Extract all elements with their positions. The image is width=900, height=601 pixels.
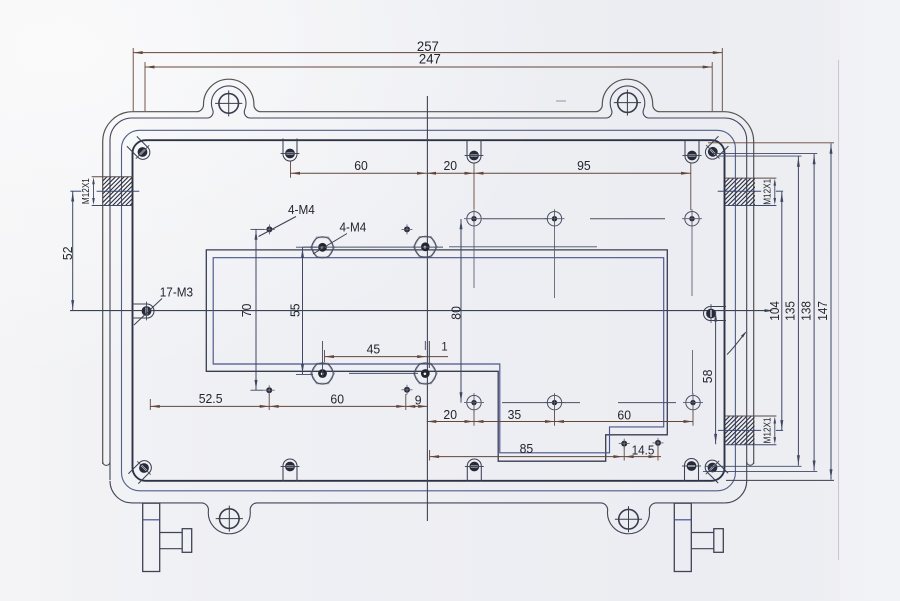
svg-text:20: 20	[443, 408, 457, 422]
svg-text:60: 60	[354, 159, 368, 173]
svg-text:135: 135	[783, 301, 797, 321]
svg-text:55: 55	[288, 303, 302, 317]
svg-text:60: 60	[617, 408, 631, 422]
svg-text:138: 138	[799, 301, 813, 321]
svg-text:147: 147	[816, 301, 830, 321]
svg-text:60: 60	[330, 392, 344, 406]
svg-text:52.5: 52.5	[199, 392, 223, 406]
svg-text:85: 85	[520, 442, 534, 456]
svg-text:80: 80	[449, 306, 463, 320]
svg-text:1: 1	[441, 340, 447, 353]
svg-text:M12X1: M12X1	[760, 417, 772, 443]
svg-text:247: 247	[419, 51, 441, 66]
svg-text:52: 52	[61, 247, 75, 261]
svg-text:M12X1: M12X1	[760, 179, 772, 205]
svg-text:45: 45	[367, 342, 381, 356]
svg-text:17-M3: 17-M3	[160, 285, 194, 299]
svg-text:4-M4: 4-M4	[340, 220, 367, 234]
svg-text:104: 104	[768, 301, 782, 321]
svg-text:14.5: 14.5	[632, 443, 655, 457]
svg-text:4-M4: 4-M4	[288, 203, 315, 217]
svg-text:95: 95	[577, 159, 591, 173]
svg-text:70: 70	[240, 304, 254, 318]
svg-text:35: 35	[508, 408, 522, 422]
svg-text:20: 20	[444, 159, 458, 173]
svg-text:9: 9	[415, 393, 422, 407]
svg-text:58: 58	[701, 370, 715, 384]
